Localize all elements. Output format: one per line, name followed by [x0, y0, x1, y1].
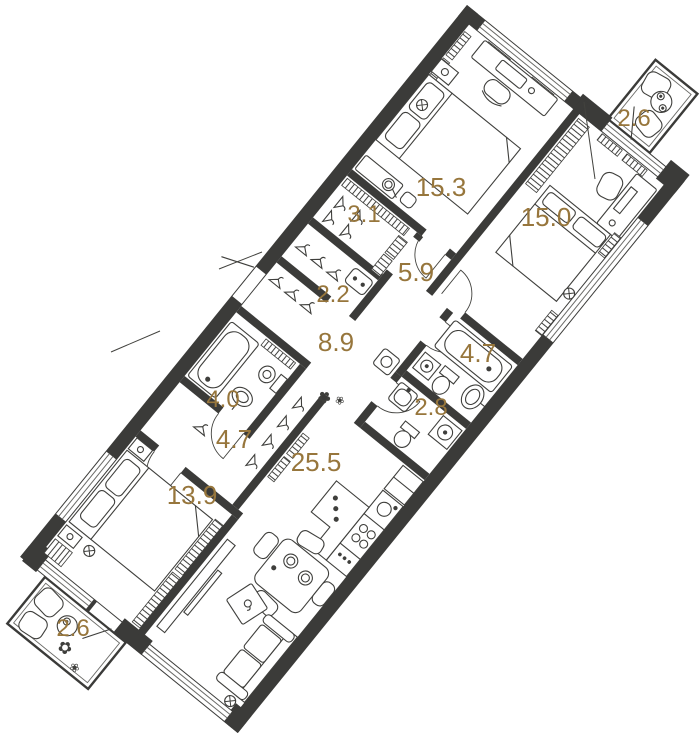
hanger-icon — [246, 455, 263, 472]
room-area-label: 2.8 — [414, 394, 447, 421]
room-area-label: 4.7 — [460, 338, 496, 368]
hanger-icon — [327, 264, 344, 281]
room-area-label: 13.9 — [167, 480, 218, 510]
window — [142, 645, 232, 721]
hanger-icon — [323, 211, 340, 228]
hanger-icon — [262, 434, 279, 451]
hanger-icon — [269, 272, 286, 289]
room-area-label: 2.6 — [56, 615, 89, 642]
room-area-label: 25.5 — [291, 447, 342, 477]
room-area-label: 2.6 — [617, 105, 650, 132]
hanger-icon — [311, 252, 328, 269]
floor-plan-page: ✿ ❀ — [0, 0, 700, 740]
vent-icon — [82, 543, 97, 558]
hanger-icon — [295, 239, 312, 256]
hanger-icon — [194, 419, 211, 436]
side-table — [226, 583, 267, 624]
room-area-label: 3.1 — [347, 201, 380, 228]
shelf — [385, 235, 407, 259]
room-area-label: 2.2 — [316, 281, 349, 308]
room-area-label: 15.3 — [416, 172, 467, 202]
hanger-icon — [300, 297, 317, 314]
room-area-label: 4.7 — [216, 424, 252, 454]
room-area-label: 5.9 — [398, 257, 434, 287]
room-corridor-left — [194, 419, 211, 436]
room-area-label: 8.9 — [318, 327, 354, 357]
floor-plan-canvas: ✿ ❀ — [0, 0, 700, 740]
entrance-door — [207, 246, 266, 304]
room-area-label: 4.0 — [206, 386, 239, 413]
hanger-icon — [285, 284, 302, 301]
hanger-icon — [293, 397, 310, 414]
hanger-icon — [277, 416, 294, 433]
room-area-label: 15.0 — [521, 202, 572, 232]
